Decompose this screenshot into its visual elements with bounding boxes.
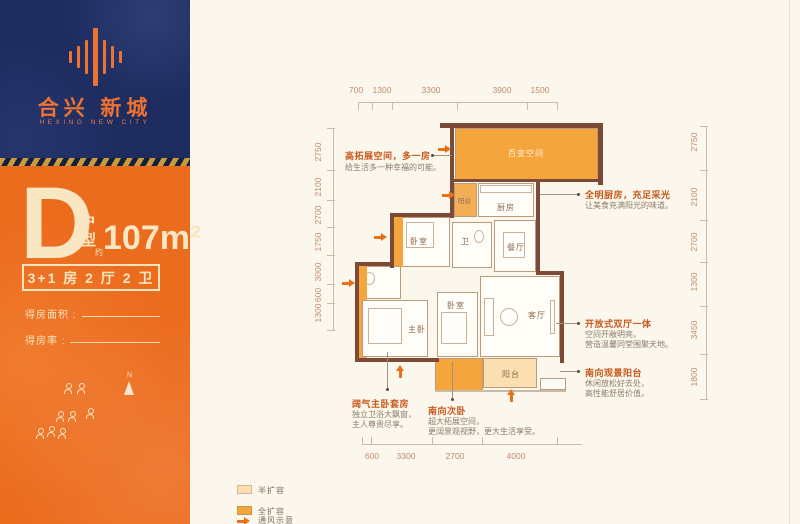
leader-line	[560, 371, 577, 372]
wall-segment	[450, 179, 600, 182]
tick	[700, 354, 708, 355]
dimension-label: 2750	[313, 137, 323, 167]
vent-arrow-icon	[442, 191, 455, 200]
tick	[700, 126, 708, 127]
wall-segment	[598, 123, 603, 185]
dimension-label: 1500	[526, 85, 554, 95]
brand-name-en: HEXING NEW CITY	[0, 119, 190, 126]
brand-logo-icon	[60, 24, 130, 90]
tick	[557, 102, 558, 110]
tick	[327, 170, 335, 171]
dimension-label: 2700	[441, 451, 469, 461]
vent-arrow-icon	[374, 233, 387, 242]
tick	[700, 220, 708, 221]
annotation-line: 给生活多一种幸福的可能。	[345, 162, 441, 173]
room-label-bedroom2: 卧室	[447, 300, 465, 311]
room-balcony-expansion	[435, 358, 483, 391]
dimension-line-top	[358, 102, 558, 103]
leader-dot	[386, 388, 389, 391]
furniture-bed2	[441, 312, 467, 344]
tick	[327, 200, 335, 201]
annotation-line: 营造温馨同堂围聚天地。	[585, 339, 673, 350]
area-field-line	[82, 316, 160, 317]
unit-approx-label: 约	[95, 247, 103, 258]
room-label-bath: 卫	[461, 236, 470, 247]
tick	[327, 303, 335, 304]
tick	[700, 306, 708, 307]
dimension-label: 600	[358, 451, 386, 461]
tick	[327, 227, 335, 228]
annotation-line: 更阔景观视野，更大生活享受。	[428, 426, 540, 437]
room-label-kitchen: 厨房	[497, 202, 515, 213]
tick	[327, 255, 335, 256]
dimension-label: 4000	[502, 451, 530, 461]
leader-line	[556, 323, 577, 324]
furniture-coffee-table	[500, 308, 518, 326]
unit-layout-box: 3+1 房 2 厅 2 卫	[22, 264, 160, 291]
tick	[327, 128, 335, 129]
person-icon	[47, 426, 55, 437]
divider-stripes	[0, 158, 190, 166]
rate-field-label: 得房率 :	[25, 332, 66, 347]
person-icon	[64, 383, 72, 394]
expansion-strip-bedroom-top	[394, 217, 403, 267]
wall-segment	[355, 262, 394, 266]
compass-north-label: N	[127, 372, 132, 379]
dimension-label: 3300	[392, 451, 420, 461]
tick	[700, 262, 708, 263]
furniture-kitchen-counter	[480, 185, 532, 193]
leader-line	[540, 194, 577, 195]
leader-line	[434, 155, 452, 156]
vent-arrow-icon	[438, 145, 451, 154]
tick	[557, 437, 558, 445]
page-edge-line	[789, 0, 790, 524]
area-field-label: 得房面积 :	[25, 306, 77, 321]
wall-segment	[355, 262, 359, 362]
wall-segment	[390, 213, 452, 217]
person-icon	[58, 428, 66, 439]
person-icon	[56, 411, 64, 422]
dimension-label: 1300	[689, 267, 699, 297]
wall-segment	[536, 182, 540, 275]
unit-type-label: 户型	[77, 214, 98, 250]
balcony-window-line	[435, 390, 566, 392]
brochure-page: 合兴 新城 HEXING NEW CITY D 户型 约 107m² 3+1 房…	[0, 0, 800, 524]
person-icon	[36, 428, 44, 439]
brand-panel: 合兴 新城 HEXING NEW CITY	[0, 0, 190, 158]
tick	[358, 102, 359, 110]
dimension-label: 2100	[689, 182, 699, 212]
furniture-sofa	[484, 298, 494, 336]
brand-name-cn: 合兴 新城	[0, 92, 190, 122]
dimension-label: 1300	[313, 298, 323, 328]
dimension-label: 3900	[488, 85, 516, 95]
dimension-label: 2100	[313, 172, 323, 202]
room-label-balcony-bottom: 阳台	[502, 369, 520, 380]
dimension-label: 1750	[313, 227, 323, 257]
person-icon	[86, 408, 94, 419]
dimension-label: 1800	[689, 362, 699, 392]
room-bath	[452, 222, 492, 268]
person-icon	[68, 411, 76, 422]
tick	[482, 437, 483, 445]
legend-vent-arrow-icon	[237, 517, 250, 524]
leader-line	[452, 362, 453, 398]
annotation-title: 高拓展空间，多一房	[345, 149, 431, 162]
compass-arrow	[124, 381, 134, 395]
tick	[372, 102, 373, 110]
tick	[327, 284, 335, 285]
annotation-line: 让美食充满阳光的味道。	[585, 200, 673, 211]
room-label-dining: 餐厅	[507, 242, 525, 253]
legend-swatch-full	[237, 506, 252, 515]
room-label-living: 客厅	[528, 310, 546, 321]
annotation-line: 主人尊贵尽享。	[352, 419, 408, 430]
tick	[371, 437, 372, 445]
dimension-label: 3450	[689, 315, 699, 345]
dimension-label: 2700	[313, 200, 323, 230]
wall-segment	[450, 125, 454, 218]
room-label-balcony-top: 阳台	[458, 195, 471, 205]
leader-dot	[577, 322, 580, 325]
dimension-label: 2700	[689, 227, 699, 257]
tick	[700, 170, 708, 171]
legend-label-half: 半扩容	[258, 485, 285, 496]
tick	[392, 102, 393, 110]
vent-arrow-icon	[507, 389, 516, 402]
legend-label-vent: 通风示意	[258, 515, 294, 524]
wall-segment	[560, 271, 564, 363]
tick	[327, 330, 335, 331]
equipment-platform	[540, 378, 566, 390]
person-icon	[77, 383, 85, 394]
leader-dot	[577, 193, 580, 196]
wall-segment	[355, 358, 439, 362]
annotation-line: 高性能舒居价值。	[585, 388, 649, 399]
room-label-bedroom-top: 卧室	[410, 236, 428, 247]
dimension-label: 1300	[368, 85, 396, 95]
dimension-label: 700	[344, 85, 368, 95]
vent-arrow-icon	[396, 365, 405, 378]
dimension-line-bottom	[362, 444, 582, 445]
room-label-flex-space: 百变空间	[508, 148, 544, 159]
vent-arrow-icon	[342, 279, 355, 288]
dimension-label: 3300	[417, 85, 445, 95]
tick	[362, 437, 363, 445]
tick	[432, 437, 433, 445]
leader-dot	[451, 398, 454, 401]
furniture-toilet	[474, 230, 484, 243]
leader-dot	[577, 370, 580, 373]
furniture-tv-cabinet	[550, 300, 555, 334]
rate-field-line	[70, 342, 160, 343]
dimension-label: 2750	[689, 127, 699, 157]
tick	[700, 399, 708, 400]
tick	[527, 102, 528, 110]
wall-segment	[390, 213, 394, 268]
unit-area: 107m²	[103, 219, 201, 258]
dimension-line-right	[706, 126, 707, 400]
furniture-bed-master	[368, 308, 402, 344]
legend-swatch-half	[237, 485, 252, 494]
leader-line	[387, 352, 388, 388]
wall-segment	[440, 123, 603, 128]
room-label-master: 主卧	[408, 324, 426, 335]
dimension-line-left	[333, 128, 334, 330]
tick	[457, 102, 458, 110]
